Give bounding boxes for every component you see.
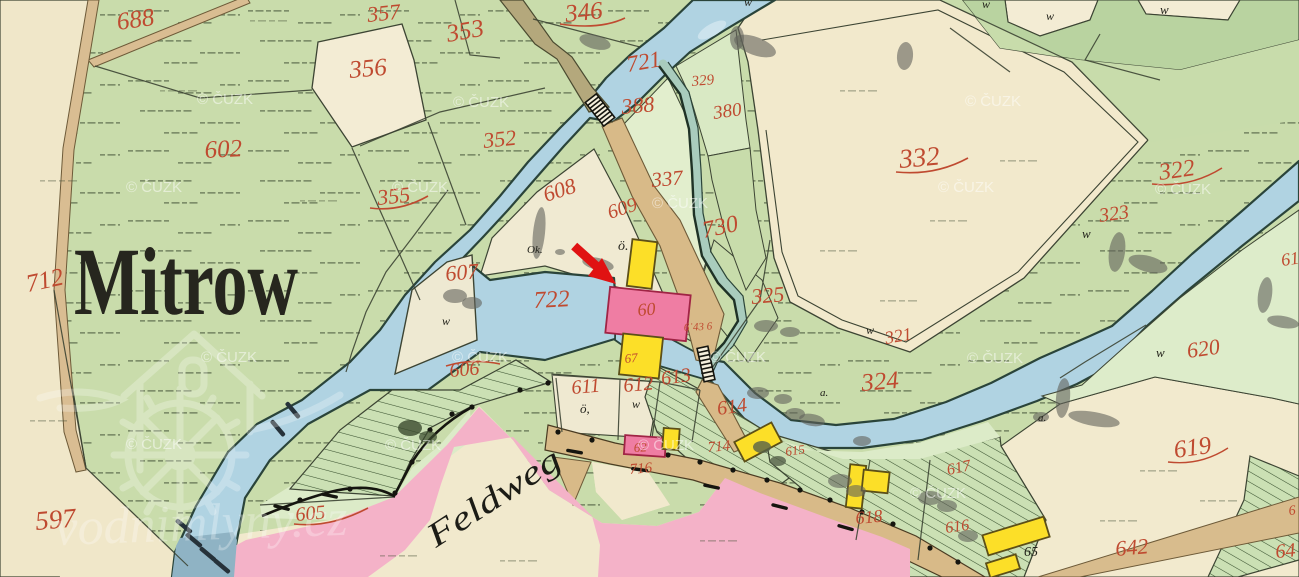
svg-text:a.: a. — [820, 387, 828, 399]
svg-text:© ČUZK: © ČUZK — [910, 485, 966, 502]
svg-text:w: w — [1156, 345, 1165, 360]
svg-text:618: 618 — [855, 506, 884, 528]
svg-text:356: 356 — [347, 54, 388, 84]
svg-text:ö.: ö. — [618, 239, 629, 254]
svg-text:© ČUZK: © ČUZK — [126, 179, 182, 196]
svg-text:6: 6 — [1288, 503, 1296, 519]
svg-text:324: 324 — [859, 367, 900, 397]
svg-text:611: 611 — [571, 375, 601, 399]
svg-text:346: 346 — [563, 0, 605, 28]
svg-text:602: 602 — [204, 135, 243, 164]
svg-text:© ČUZK: © ČUZK — [652, 195, 708, 212]
svg-text:© ČUZK: © ČUZK — [967, 350, 1023, 367]
svg-text:332: 332 — [897, 141, 941, 175]
svg-text:688: 688 — [115, 4, 156, 36]
svg-text:w: w — [1046, 9, 1054, 23]
svg-text:64: 64 — [1275, 539, 1297, 563]
svg-text:337: 337 — [649, 165, 685, 192]
svg-text:w: w — [866, 323, 874, 337]
svg-text:a.: a. — [1038, 412, 1046, 424]
svg-text:325: 325 — [749, 281, 785, 309]
svg-text:© ČUZK: © ČUZK — [638, 437, 694, 454]
svg-text:615: 615 — [784, 441, 806, 459]
svg-text:© ČUZK: © ČUZK — [197, 91, 253, 108]
svg-text:© ČUZK: © ČUZK — [453, 94, 509, 111]
svg-text:Mitrow: Mitrow — [74, 228, 298, 335]
svg-text:© ČUZK: © ČUZK — [938, 179, 994, 196]
svg-text:vodnimlyny.cz: vodnimlyny.cz — [53, 490, 348, 557]
svg-text:607: 607 — [444, 258, 480, 286]
svg-text:620: 620 — [1185, 334, 1221, 363]
svg-text:w: w — [1160, 2, 1169, 17]
svg-text:716: 716 — [629, 460, 653, 478]
svg-text:613: 613 — [660, 364, 693, 390]
svg-text:w: w — [442, 314, 450, 328]
svg-text:67: 67 — [624, 350, 639, 366]
svg-text:6˙43 6: 6˙43 6 — [684, 320, 714, 333]
svg-text:352: 352 — [481, 125, 517, 153]
svg-text:614: 614 — [716, 394, 749, 420]
svg-text:w: w — [1082, 226, 1091, 241]
svg-text:w: w — [744, 0, 752, 9]
svg-text:714: 714 — [707, 438, 731, 456]
svg-text:ö,: ö, — [580, 401, 590, 416]
svg-text:380: 380 — [711, 99, 744, 124]
svg-text:© ČUZK: © ČUZK — [710, 349, 766, 366]
svg-text:w: w — [632, 397, 640, 411]
svg-text:w: w — [982, 0, 990, 11]
svg-text:642: 642 — [1114, 533, 1149, 561]
svg-text:388: 388 — [619, 91, 655, 119]
svg-text:Ok.: Ok. — [527, 244, 543, 256]
svg-text:61: 61 — [1280, 248, 1299, 270]
svg-text:619: 619 — [1172, 432, 1213, 464]
svg-text:© ČUZK: © ČUZK — [1155, 181, 1211, 198]
svg-text:722: 722 — [533, 286, 570, 314]
svg-text:323: 323 — [1097, 201, 1131, 227]
svg-text:616: 616 — [944, 517, 970, 537]
svg-text:© ČUZK: © ČUZK — [965, 93, 1021, 110]
svg-text:329: 329 — [690, 72, 715, 90]
svg-text:65: 65 — [1024, 545, 1038, 560]
svg-text:612: 612 — [623, 372, 655, 397]
svg-text:© ČUZK: © ČUZK — [385, 437, 441, 454]
svg-text:© ČUZK: © ČUZK — [392, 179, 448, 196]
svg-text:357: 357 — [365, 0, 402, 27]
svg-text:© ČUZK: © ČUZK — [452, 349, 508, 366]
svg-text:60: 60 — [637, 298, 657, 319]
